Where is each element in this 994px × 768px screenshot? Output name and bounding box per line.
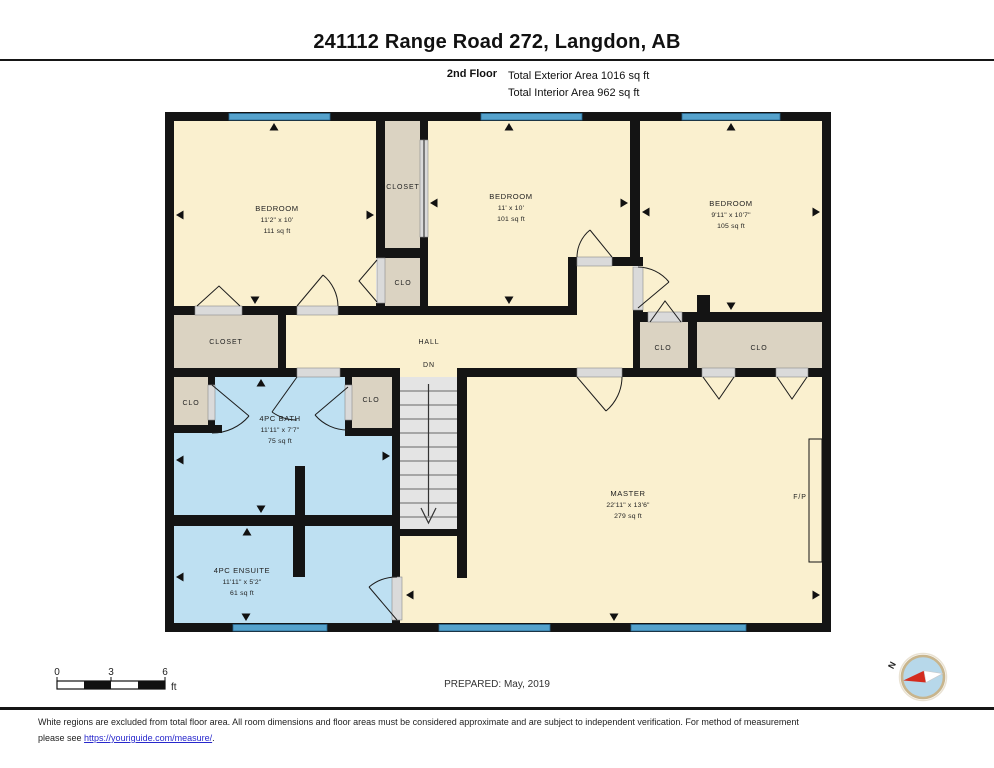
svg-text:111 sq ft: 111 sq ft [264,228,291,235]
svg-text:22'11" x 13'6": 22'11" x 13'6" [606,502,650,509]
bedroom-2-floor-alcove [428,257,568,306]
vestibule-floor [577,266,633,368]
door-master [577,368,622,377]
scale-tick-0: 0 [54,667,60,678]
footer-line2-suffix: . [212,733,215,743]
compass: N [880,648,956,708]
window-bedroom3 [682,114,780,121]
scale-tick-6: 6 [162,667,168,678]
master-floor [467,377,822,623]
door-ensuite [392,577,402,620]
svg-text:11'2" x 10': 11'2" x 10' [261,217,294,224]
clo-master-label: CLO [750,345,767,352]
door-bath [297,368,340,377]
window-bedroom2 [481,114,582,121]
door-clo-bedroom1 [377,258,385,303]
door-clo-bath-left [208,385,215,420]
window-ensuite [233,625,327,632]
svg-text:61 sq ft: 61 sq ft [230,590,254,597]
footer-divider [0,707,994,710]
door-bedroom1 [297,306,338,315]
prepared-date: PREPARED: May, 2019 [0,679,994,690]
window-master-right [631,625,746,632]
floorplan-page: 241112 Range Road 272, Langdon, AB 2nd F… [0,0,994,768]
svg-text:279 sq ft: 279 sq ft [614,513,642,520]
door-clo-master-bifold-2 [776,368,808,377]
svg-text:11' x 10': 11' x 10' [498,205,524,212]
window-bedroom1 [229,114,330,121]
master-floor-ext [400,536,467,623]
svg-text:4PC BATH: 4PC BATH [259,414,300,423]
clo-bedroom1-label: CLO [394,280,411,287]
svg-text:75 sq ft: 75 sq ft [268,438,292,445]
svg-text:BEDROOM: BEDROOM [489,192,532,201]
bedroom-2-floor [428,121,630,257]
svg-text:MASTER: MASTER [610,489,645,498]
clo-bath-left-label: CLO [182,400,199,407]
door-closet-left-bifold [195,306,242,315]
ensuite-floor [174,526,392,623]
svg-text:9'11" x 10'7": 9'11" x 10'7" [711,212,751,219]
window-master-left [439,625,550,632]
door-clo-master-bifold-1 [702,368,735,377]
clo-bath-right-label: CLO [362,397,379,404]
svg-text:BEDROOM: BEDROOM [709,199,752,208]
door-bedroom2 [577,257,612,266]
door-bedroom3 [633,267,643,310]
svg-text:BEDROOM: BEDROOM [255,204,298,213]
scale-tick-3: 3 [108,667,114,678]
closet-top-label: CLOSET [386,184,419,191]
floor-plan: BEDROOM 11'2" x 10' 111 sq ft BEDROOM 11… [0,0,994,768]
dn-label: DN [423,362,435,369]
measure-link[interactable]: https://youriguide.com/measure/ [84,733,212,743]
fireplace-label: F/P [793,494,807,501]
svg-text:4PC ENSUITE: 4PC ENSUITE [214,566,270,575]
clo-bedroom3-label: CLO [654,345,671,352]
svg-text:101 sq ft: 101 sq ft [497,216,525,223]
hall-label: HALL [418,339,439,346]
hall-stair-opening [400,368,457,377]
bedroom-1-floor [174,121,376,306]
footer-line1: White regions are excluded from total fl… [38,717,799,727]
door-clo-bath-right [345,385,352,420]
compass-n-label: N [886,660,898,670]
footer-disclaimer: White regions are excluded from total fl… [38,714,968,746]
svg-text:105 sq ft: 105 sq ft [717,223,745,230]
closet-left-label: CLOSET [209,339,242,346]
svg-text:11'11" x 5'2": 11'11" x 5'2" [223,579,262,586]
footer-line2-prefix: please see [38,733,84,743]
svg-text:11'11" x 7'7": 11'11" x 7'7" [261,427,300,434]
